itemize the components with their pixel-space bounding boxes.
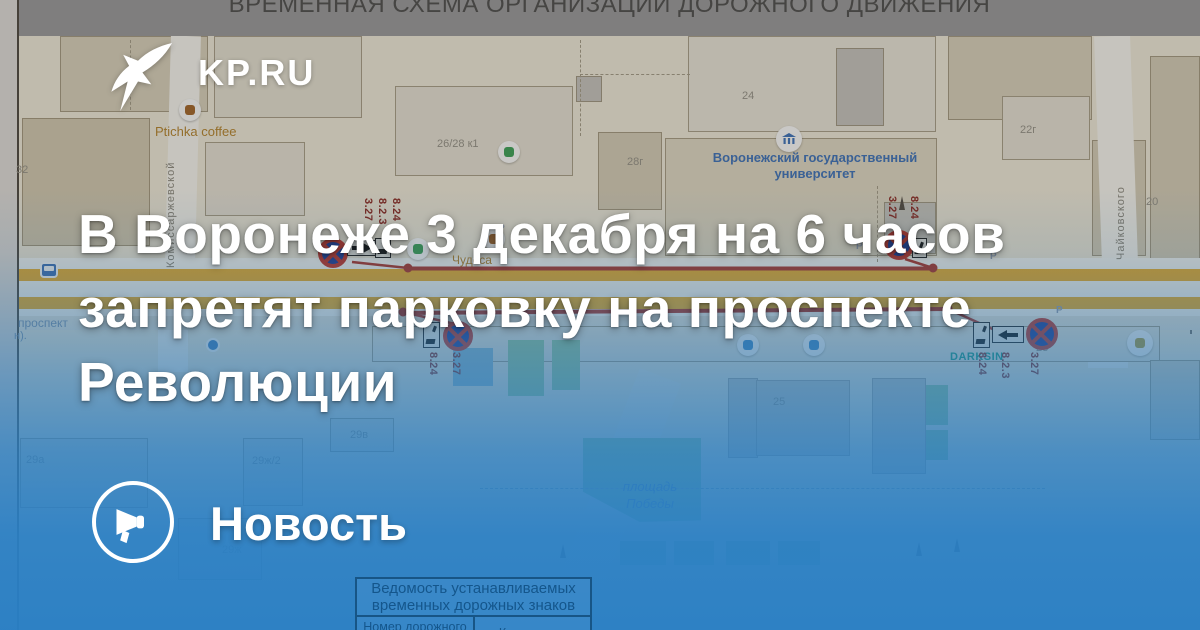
megaphone-icon [111, 500, 155, 544]
scheme-title: ВРЕМЕННАЯ СХЕМА ОРГАНИЗАЦИИ ДОРОЖНОГО ДВ… [19, 0, 1200, 19]
signs-table-header-row: Номер дорожного Количество [357, 615, 590, 630]
signs-table-title-line1: Ведомость устанавливаемых [357, 580, 590, 597]
news-badge-circle [92, 481, 174, 563]
signs-table-title-line2: временных дорожных знаков [357, 597, 590, 614]
signs-table-title: Ведомость устанавливаемых временных доро… [357, 580, 590, 614]
headline-line1: В Воронеже 3 декабря на 6 часов [78, 197, 1005, 271]
scheme-title-band: ВРЕМЕННАЯ СХЕМА ОРГАНИЗАЦИИ ДОРОЖНОГО ДВ… [19, 0, 1200, 36]
kp-logo-text: KP.RU [198, 52, 315, 94]
signs-table: Ведомость устанавливаемых временных доро… [355, 577, 592, 630]
no-stopping-sign-icon [1026, 318, 1058, 350]
kp-bird-logo-icon [100, 40, 176, 114]
news-card: 32 26/28 к1 28г 24 22г 20 29а 29ж/2 29в … [0, 0, 1200, 630]
sign-number: 3.27 [1028, 352, 1040, 375]
signs-table-col2: Количество [475, 626, 590, 630]
headline-line2: запретят парковку на проспекте [78, 271, 1005, 345]
headline-line3: Революции [78, 345, 1005, 419]
headline: В Воронеже 3 декабря на 6 часов запретят… [78, 197, 1005, 419]
news-badge-label: Новость [210, 496, 407, 551]
signs-table-col1: Номер дорожного [359, 620, 471, 630]
